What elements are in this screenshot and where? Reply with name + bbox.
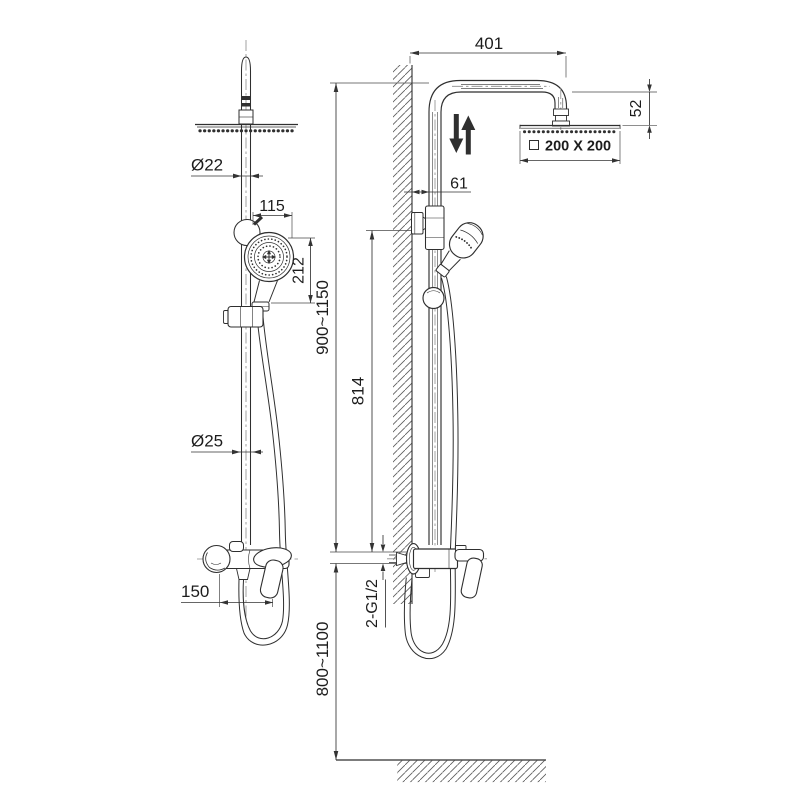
dim-label-212: 212 — [291, 257, 308, 284]
dim-label-814: 814 — [349, 377, 368, 405]
dim-label-900-1150: 900~1150 — [313, 280, 332, 355]
dim-label-dia25: Ø25 — [191, 432, 223, 451]
dim-label-dia22: Ø22 — [191, 156, 223, 175]
label-inlet-threads: 2-G1/2 — [364, 579, 381, 628]
wall-bracket — [412, 206, 445, 250]
shower-dimension-drawing: Ø22 115 — [0, 0, 800, 800]
dim-label-800-1100: 800~1100 — [313, 622, 332, 697]
dim-label-52: 52 — [628, 100, 645, 118]
dim-head-drop: 52 — [572, 79, 657, 139]
dim-label-115: 115 — [259, 198, 285, 215]
slider-ball — [423, 288, 444, 309]
slider-clamp — [224, 307, 264, 328]
overhead-shower-side — [520, 109, 620, 132]
dim-outlet-spacing: 150 — [181, 574, 273, 607]
hand-shower-front — [234, 217, 294, 311]
dim-label-61: 61 — [450, 176, 468, 193]
side-view: 401 52 200 X 200 61 — [313, 34, 657, 782]
dim-label-401: 401 — [475, 34, 503, 53]
dim-arm-reach: 401 — [410, 34, 566, 78]
overhead-shower-front — [195, 125, 298, 131]
dim-inlet-offset: 2-G1/2 — [364, 535, 386, 628]
floor-hatch — [336, 760, 546, 782]
front-view: Ø22 115 — [181, 40, 315, 645]
dim-lower-pipe-diameter: Ø25 — [191, 432, 263, 455]
dim-label-150: 150 — [181, 582, 209, 601]
square-symbol — [530, 141, 539, 150]
dim-head-size: 200 X 200 — [520, 131, 620, 164]
dim-bracket-to-valve: 814 — [349, 231, 375, 553]
wall-hatch — [393, 65, 412, 604]
technical-drawing: Ø22 115 — [0, 0, 800, 800]
dim-label-200x200: 200 X 200 — [545, 139, 611, 155]
updown-arrows-icon — [449, 114, 475, 155]
dim-riser-range: 900~1150 — [313, 83, 338, 552]
dim-valve-to-floor: 800~1100 — [313, 564, 338, 761]
dim-top-pipe-diameter: Ø22 — [191, 156, 263, 179]
